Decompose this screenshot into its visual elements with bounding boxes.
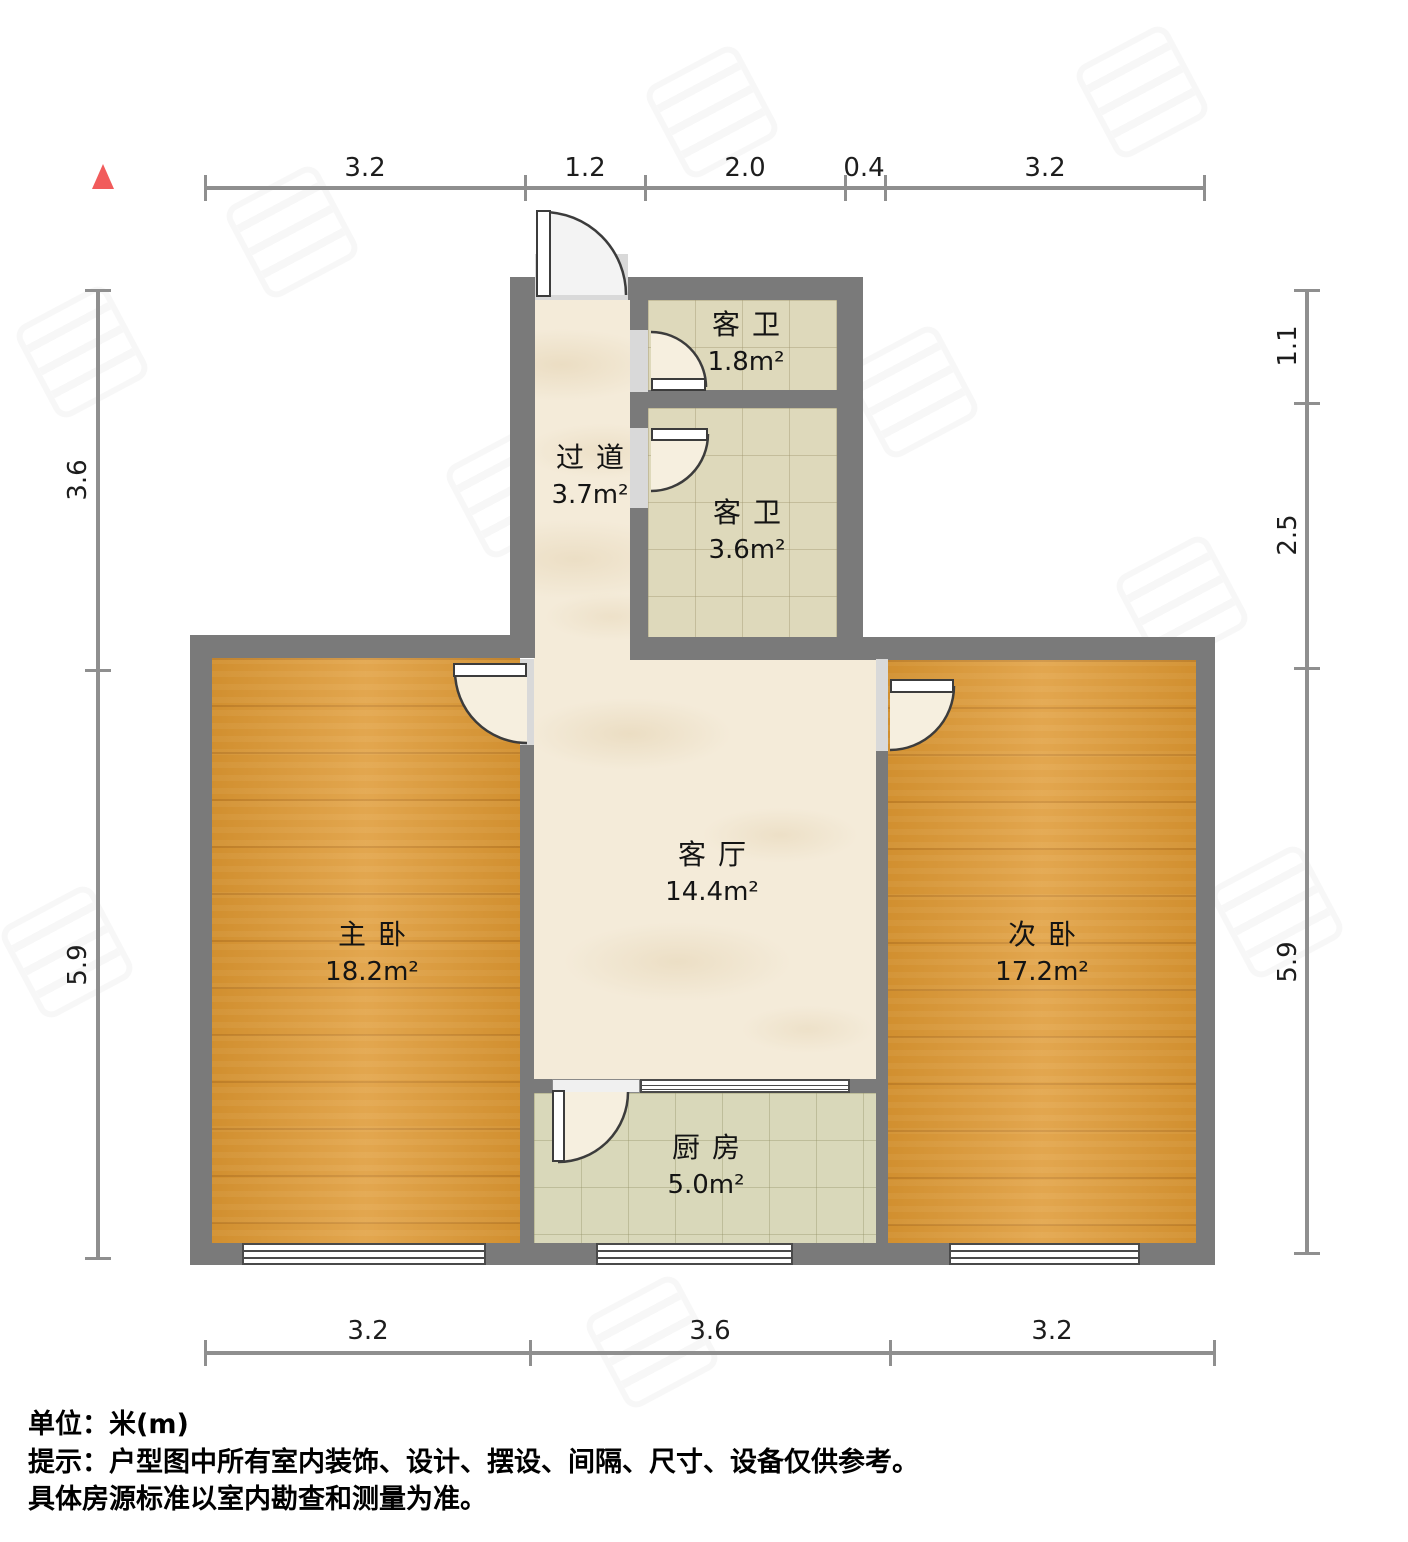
wall-segment bbox=[510, 277, 535, 658]
wall-segment bbox=[850, 1079, 876, 1093]
window-mullion bbox=[244, 1257, 484, 1259]
dimension-label: 5.9 bbox=[1273, 941, 1303, 982]
wall-segment bbox=[520, 745, 534, 1243]
wall-segment bbox=[876, 751, 888, 1243]
dimension-tick bbox=[1203, 175, 1206, 201]
dimension-label: 3.2 bbox=[347, 1316, 388, 1346]
room-name: 过道 bbox=[551, 436, 640, 476]
dimension-line-top bbox=[205, 186, 1205, 190]
bath2-door-leaf bbox=[651, 428, 708, 441]
second-door-opening bbox=[876, 659, 888, 751]
wall-segment bbox=[190, 635, 534, 658]
bath1-door-opening bbox=[630, 330, 648, 392]
wall-segment bbox=[630, 390, 837, 408]
wall-segment bbox=[534, 1079, 552, 1093]
kitchen-door-opening bbox=[552, 1079, 640, 1093]
dimension-tick bbox=[644, 175, 647, 201]
room-area: 17.2m² bbox=[995, 957, 1089, 987]
dimension-tick bbox=[524, 175, 527, 201]
north-triangle-icon bbox=[92, 164, 114, 189]
room-name: 客厅 bbox=[665, 833, 771, 873]
room-name: 次卧 bbox=[995, 913, 1101, 953]
room-name: 厨房 bbox=[667, 1126, 756, 1166]
master-door-leaf bbox=[453, 663, 527, 677]
dimension-tick bbox=[1294, 402, 1320, 405]
wall-segment bbox=[190, 1243, 242, 1265]
window-mullion bbox=[951, 1257, 1138, 1259]
window-mullion bbox=[598, 1257, 791, 1259]
dimension-label: 1.1 bbox=[1273, 325, 1303, 366]
disclaimer-line2: 具体房源标准以室内勘查和测量为准。 bbox=[28, 1477, 487, 1516]
window-mullion bbox=[598, 1250, 791, 1252]
room-name: 客卫 bbox=[708, 491, 797, 531]
room-area: 1.8m² bbox=[707, 347, 784, 377]
room-label-bath1: 客卫 1.8m² bbox=[707, 303, 784, 377]
dimension-label: 0.4 bbox=[843, 153, 884, 183]
dimension-tick bbox=[1294, 1252, 1320, 1255]
room-label-kitchen: 厨房 5.0m² bbox=[667, 1126, 744, 1200]
dimension-label: 3.2 bbox=[1024, 153, 1065, 183]
room-label-second: 次卧 17.2m² bbox=[995, 913, 1089, 987]
dimension-tick bbox=[889, 1340, 892, 1366]
dimension-line-bottom bbox=[205, 1351, 1215, 1355]
dimension-label: 2.0 bbox=[724, 153, 765, 183]
watermark bbox=[1072, 22, 1213, 163]
dimension-tick bbox=[85, 669, 111, 672]
dimension-tick bbox=[85, 1257, 111, 1260]
floor-plan-canvas: 客卫 1.8m² 过道 3.7m² 客卫 3.6m² 客厅 14.4m² 主卧 … bbox=[0, 0, 1408, 1542]
wall-segment bbox=[1196, 637, 1215, 1265]
window-mullion bbox=[642, 1085, 848, 1086]
wall-segment bbox=[630, 508, 648, 637]
master-bedroom-window bbox=[242, 1243, 486, 1265]
bath1-door-leaf bbox=[651, 378, 706, 391]
kitchen-door-leaf bbox=[552, 1090, 565, 1162]
dimension-tick bbox=[85, 289, 111, 292]
dimension-label: 1.2 bbox=[564, 153, 605, 183]
dimension-tick bbox=[1294, 667, 1320, 670]
room-area: 5.0m² bbox=[667, 1170, 744, 1200]
wall-segment bbox=[630, 300, 648, 330]
wall-segment bbox=[630, 408, 648, 428]
unit-note: 单位：米(m) bbox=[28, 1402, 189, 1441]
dimension-tick bbox=[204, 1340, 207, 1366]
wall-segment bbox=[190, 635, 212, 1265]
room-label-master: 主卧 18.2m² bbox=[325, 913, 419, 987]
dimension-tick bbox=[1294, 289, 1320, 292]
second-bedroom-window bbox=[949, 1243, 1140, 1265]
room-label-living: 客厅 14.4m² bbox=[665, 833, 759, 907]
dimension-tick bbox=[1213, 1340, 1216, 1366]
second-door-leaf bbox=[890, 679, 954, 693]
window-mullion bbox=[642, 1089, 848, 1090]
dimension-label: 3.6 bbox=[689, 1316, 730, 1346]
room-name: 主卧 bbox=[325, 913, 431, 953]
living-kitchen-pass-window bbox=[640, 1079, 850, 1093]
room-area: 18.2m² bbox=[325, 957, 419, 987]
dimension-line-right bbox=[1305, 290, 1309, 1255]
window-mullion bbox=[244, 1250, 484, 1252]
dimension-tick bbox=[529, 1340, 532, 1366]
dimension-label: 3.2 bbox=[1031, 1316, 1072, 1346]
wall-segment bbox=[793, 1243, 949, 1265]
room-area: 3.7m² bbox=[551, 480, 628, 510]
room-area: 3.6m² bbox=[708, 535, 785, 565]
dimension-label: 3.2 bbox=[344, 153, 385, 183]
wall-segment bbox=[1140, 1243, 1215, 1265]
watermark bbox=[12, 282, 153, 423]
entrance-door-leaf bbox=[536, 210, 551, 297]
kitchen-window bbox=[596, 1243, 793, 1265]
wall-segment bbox=[837, 277, 863, 660]
wall-segment bbox=[486, 1243, 596, 1265]
window-mullion bbox=[951, 1250, 1138, 1252]
wall-segment bbox=[630, 637, 1215, 660]
dimension-label: 3.6 bbox=[63, 459, 93, 500]
room-area: 14.4m² bbox=[665, 877, 759, 907]
wall-segment bbox=[628, 277, 837, 300]
dimension-line-left bbox=[96, 290, 100, 1260]
watermark bbox=[222, 162, 363, 303]
room-name: 客卫 bbox=[707, 303, 796, 343]
dimension-label: 2.5 bbox=[1273, 514, 1303, 555]
room-label-hallway: 过道 3.7m² bbox=[551, 436, 628, 510]
dimension-tick bbox=[204, 175, 207, 201]
room-label-bath2: 客卫 3.6m² bbox=[708, 491, 785, 565]
dimension-label: 5.9 bbox=[63, 944, 93, 985]
disclaimer-line1: 提示：户型图中所有室内装饰、设计、摆设、间隔、尺寸、设备仅供参考。 bbox=[28, 1440, 919, 1479]
